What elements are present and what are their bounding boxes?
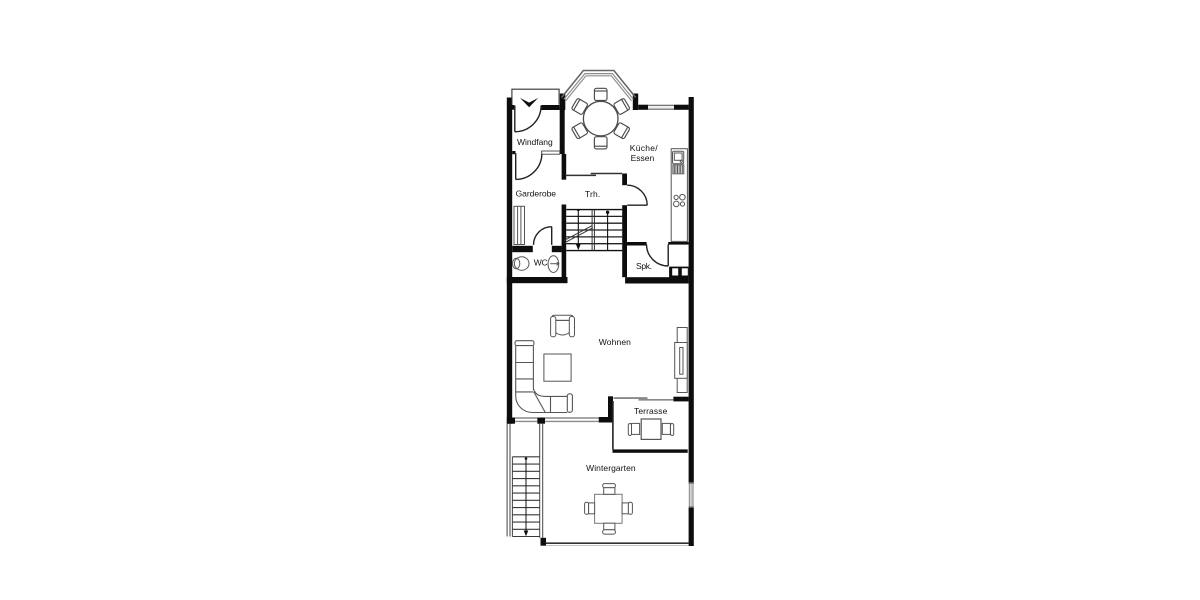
svg-text:Spk.: Spk. xyxy=(636,261,652,271)
svg-text:Garderobe: Garderobe xyxy=(516,189,557,199)
svg-text:Küche/: Küche/ xyxy=(630,143,658,153)
svg-text:Trh.: Trh. xyxy=(585,189,600,199)
svg-text:Terrasse: Terrasse xyxy=(634,406,668,416)
svg-text:Windfang: Windfang xyxy=(517,137,553,147)
svg-text:Essen: Essen xyxy=(631,153,655,163)
svg-text:Wintergarten: Wintergarten xyxy=(586,463,636,473)
svg-text:Wohnen: Wohnen xyxy=(599,337,631,347)
svg-text:WC: WC xyxy=(534,257,548,267)
